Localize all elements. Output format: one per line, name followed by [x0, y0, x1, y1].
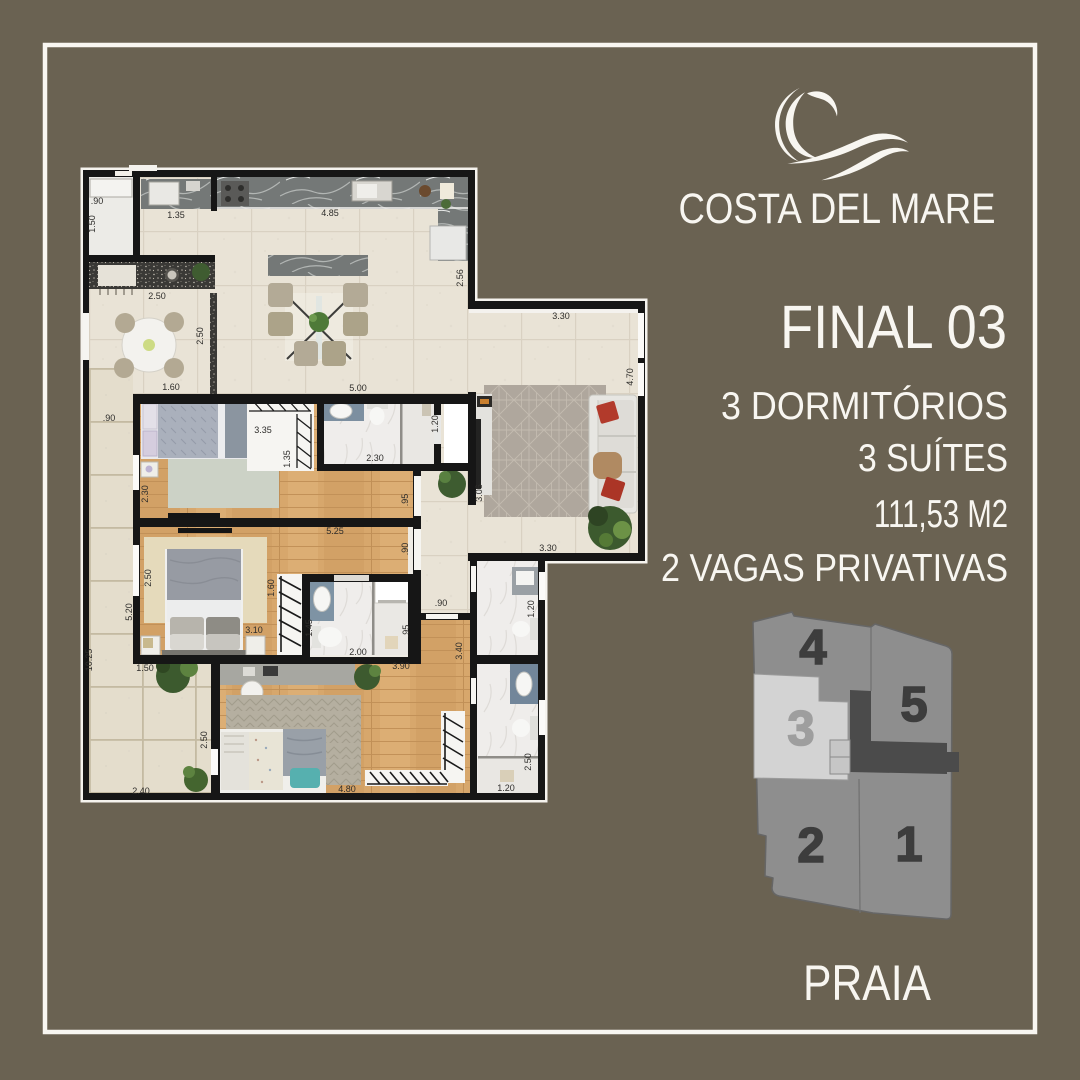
svg-text:4.70: 4.70 [625, 368, 635, 386]
svg-text:1.20: 1.20 [526, 600, 536, 618]
svg-text:3.30: 3.30 [539, 543, 557, 553]
svg-text:2.50: 2.50 [143, 569, 153, 587]
svg-text:3.06: 3.06 [474, 484, 484, 502]
svg-text:.90: .90 [91, 196, 104, 206]
svg-text:FINAL 03: FINAL 03 [780, 293, 1007, 361]
svg-text:4.85: 4.85 [321, 208, 339, 218]
svg-text:.90: .90 [400, 543, 410, 556]
svg-text:5.25: 5.25 [326, 526, 344, 536]
svg-text:4: 4 [799, 621, 826, 675]
svg-text:5: 5 [900, 678, 927, 732]
svg-text:2.50: 2.50 [199, 731, 209, 749]
svg-text:1.60: 1.60 [266, 579, 276, 597]
svg-text:3.90: 3.90 [392, 661, 410, 671]
svg-text:2.30: 2.30 [140, 485, 150, 503]
svg-text:COSTA DEL MARE: COSTA DEL MARE [679, 186, 996, 233]
svg-text:1.50: 1.50 [87, 215, 97, 233]
svg-text:3.30: 3.30 [552, 311, 570, 321]
svg-text:10.25: 10.25 [84, 649, 94, 672]
svg-text:3: 3 [787, 702, 814, 756]
svg-text:1.45: 1.45 [304, 619, 314, 637]
svg-text:2 VAGAS PRIVATIVAS: 2 VAGAS PRIVATIVAS [661, 547, 1008, 590]
svg-text:2.56: 2.56 [455, 269, 465, 287]
svg-text:2.50: 2.50 [523, 753, 533, 771]
svg-text:1: 1 [895, 818, 922, 872]
svg-text:.95: .95 [401, 625, 411, 638]
svg-text:1.50: 1.50 [136, 663, 154, 673]
svg-text:.90: .90 [435, 598, 448, 608]
svg-text:2.50: 2.50 [195, 327, 205, 345]
svg-text:2.00: 2.00 [349, 647, 367, 657]
svg-text:1.20: 1.20 [430, 415, 440, 433]
svg-text:4.80: 4.80 [338, 784, 356, 794]
svg-text:1.20: 1.20 [497, 783, 515, 793]
svg-text:1.60: 1.60 [162, 382, 180, 392]
svg-text:2: 2 [797, 819, 824, 873]
svg-text:1.35: 1.35 [282, 450, 292, 468]
svg-text:.95: .95 [400, 494, 410, 507]
svg-text:2.50: 2.50 [148, 291, 166, 301]
svg-text:5.20: 5.20 [124, 603, 134, 621]
svg-text:3 SUÍTES: 3 SUÍTES [858, 437, 1008, 480]
svg-text:111,53 M2: 111,53 M2 [874, 493, 1008, 536]
svg-text:1.35: 1.35 [167, 210, 185, 220]
svg-text:2.30: 2.30 [366, 453, 384, 463]
svg-text:2.40: 2.40 [132, 786, 150, 796]
svg-text:PRAIA: PRAIA [803, 955, 932, 1011]
svg-text:3.40: 3.40 [454, 642, 464, 660]
svg-text:3 DORMITÓRIOS: 3 DORMITÓRIOS [721, 385, 1008, 428]
svg-text:3.10: 3.10 [245, 625, 263, 635]
svg-text:5.00: 5.00 [349, 383, 367, 393]
svg-text:.90: .90 [103, 413, 116, 423]
svg-text:3.35: 3.35 [254, 425, 272, 435]
